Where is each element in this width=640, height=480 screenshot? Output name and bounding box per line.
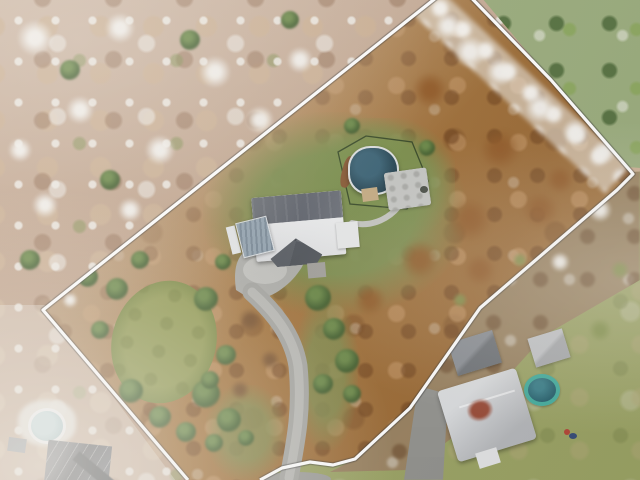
conifer-blob [323, 318, 345, 340]
conifer-blob [60, 60, 80, 80]
moss-blob [512, 252, 528, 268]
snow-blob [105, 13, 135, 43]
snow-blob [550, 252, 570, 272]
conifer-blob [216, 345, 236, 365]
snow-blob [199, 56, 231, 88]
rust-blob [354, 284, 386, 316]
conifer-blob [205, 434, 223, 452]
conifer-blob [176, 422, 196, 442]
rust-blob [522, 192, 558, 228]
conifer-blob [419, 140, 435, 156]
snow-blob [525, 93, 555, 123]
aerial-photo [0, 0, 640, 480]
moss-blob [610, 260, 630, 280]
conifer-blob [343, 385, 361, 403]
rust-blob [400, 240, 440, 280]
conifer-blob [119, 379, 143, 403]
snow-blob [145, 135, 175, 165]
conifer-blob [201, 371, 219, 389]
conifer-blob [131, 251, 149, 269]
neighbor-trampoline-pool [524, 374, 560, 406]
rust-blob [480, 130, 520, 170]
conifer-blob [215, 254, 231, 270]
snow-blob [118, 198, 142, 222]
neighbor-round-pool [28, 408, 66, 444]
snow-blob [562, 119, 588, 145]
conifer-blob [313, 374, 333, 394]
conifer-blob [194, 287, 218, 311]
conifer-blob [281, 11, 299, 29]
yard-object-blue [569, 433, 577, 439]
snow-blob [246, 106, 274, 134]
moss-blob [452, 292, 468, 308]
rust-blob [448, 198, 492, 242]
house-wing-roof [336, 221, 360, 249]
snow-blob [454, 36, 486, 68]
conifer-blob [149, 406, 171, 428]
conifer-blob [217, 408, 241, 432]
conifer-blob [180, 30, 200, 50]
snow-blob [486, 58, 514, 86]
shrub-blob [238, 308, 262, 332]
conifer-blob [335, 349, 359, 373]
rust-blob [546, 166, 574, 194]
pool-equipment [420, 186, 428, 193]
conifer-blob [238, 430, 254, 446]
snow-blob [32, 192, 58, 218]
conifer-blob [305, 285, 331, 311]
conifer-blob [344, 118, 360, 134]
rust-blob [412, 72, 448, 108]
shrub-blob [230, 380, 250, 400]
conifer-blob [106, 278, 128, 300]
house-deck [307, 262, 326, 279]
rust-blob [464, 254, 496, 286]
conifer-blob [91, 321, 109, 339]
snow-blob [8, 138, 32, 162]
conifer-blob [20, 250, 40, 270]
snow-blob [287, 47, 313, 73]
neighbor-left-shed [7, 437, 27, 453]
moss-blob [588, 318, 612, 342]
pool-steps [361, 187, 379, 202]
shrub-blob [260, 350, 280, 370]
snow-blob [435, 13, 461, 39]
snow-blob [66, 96, 94, 124]
conifer-blob [100, 170, 120, 190]
snow-blob [17, 20, 53, 56]
snow-blob [62, 292, 78, 308]
